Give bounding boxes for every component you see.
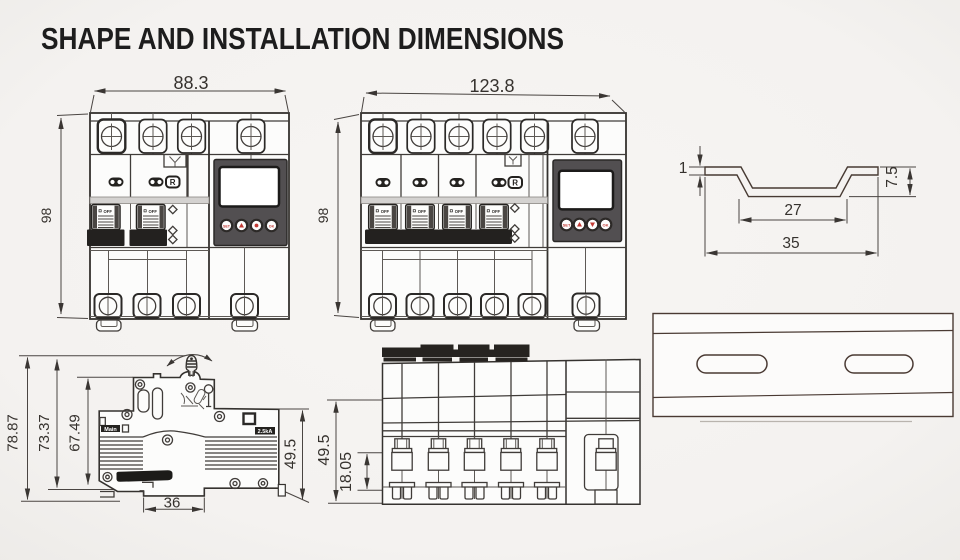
svg-text:SET: SET — [223, 224, 231, 228]
svg-text:SET: SET — [563, 223, 571, 228]
svg-text:OFF: OFF — [455, 209, 464, 214]
svg-text:123.8: 123.8 — [469, 76, 514, 96]
svg-text:35: 35 — [782, 235, 799, 252]
svg-text:R: R — [170, 178, 176, 187]
svg-text:73.37: 73.37 — [36, 414, 53, 452]
svg-text:98: 98 — [315, 208, 331, 224]
svg-text:7.5: 7.5 — [884, 166, 901, 188]
svg-text:OK: OK — [269, 224, 275, 228]
svg-text:88.3: 88.3 — [173, 73, 208, 93]
svg-text:27: 27 — [784, 202, 801, 219]
svg-text:67.49: 67.49 — [67, 414, 84, 452]
svg-text:18.05: 18.05 — [338, 452, 355, 492]
svg-text:49.5: 49.5 — [283, 439, 300, 469]
svg-text:SHAPE AND INSTALLATION DIMENSI: SHAPE AND INSTALLATION DIMENSIONS — [41, 22, 564, 56]
svg-text:1: 1 — [679, 160, 688, 177]
svg-text:R: R — [512, 179, 518, 188]
svg-text:36: 36 — [164, 495, 181, 512]
svg-text:OK: OK — [603, 223, 609, 228]
svg-text:OFF: OFF — [381, 209, 390, 214]
svg-text:2.5kA: 2.5kA — [258, 429, 273, 435]
svg-text:49.5: 49.5 — [316, 434, 333, 465]
svg-text:OFF: OFF — [492, 209, 501, 214]
svg-text:Main: Main — [104, 427, 117, 433]
svg-text:98: 98 — [38, 208, 54, 224]
svg-text:78.87: 78.87 — [5, 414, 22, 452]
svg-text:OFF: OFF — [104, 209, 113, 214]
svg-text:OFF: OFF — [418, 209, 427, 214]
svg-text:OFF: OFF — [149, 209, 158, 214]
